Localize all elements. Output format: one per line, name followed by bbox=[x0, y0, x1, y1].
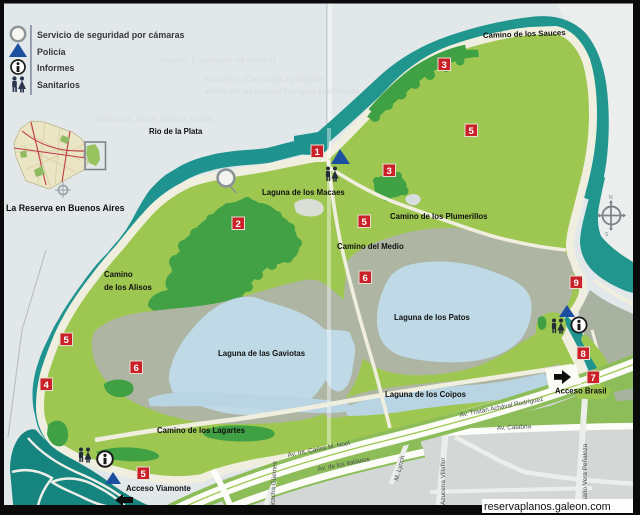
svg-text:reservaplanos.galeon.com: reservaplanos.galeon.com bbox=[484, 501, 611, 513]
svg-text:5: 5 bbox=[141, 469, 147, 480]
svg-text:Informes: Informes bbox=[37, 63, 75, 73]
svg-text:Acceso Viamonte: Acceso Viamonte bbox=[126, 484, 192, 493]
svg-text:Policía: Policía bbox=[37, 47, 66, 57]
svg-text:8: 8 bbox=[581, 349, 587, 360]
svg-text:Camino de los Lagartes: Camino de los Lagartes bbox=[157, 426, 246, 435]
svg-text:5: 5 bbox=[362, 217, 368, 228]
svg-text:souens; Cernoga l yvilgda: souens; Cernoga l yvilgda bbox=[205, 74, 324, 85]
svg-text:2: 2 bbox=[236, 219, 241, 230]
svg-text:Laguna de los Patos: Laguna de los Patos bbox=[394, 313, 470, 322]
svg-text:Servicio de seguridad por cáma: Servicio de seguridad por cámaras bbox=[37, 30, 185, 40]
svg-text:6: 6 bbox=[134, 363, 139, 374]
svg-text:weib do asnuaso fungos l ocinu: weib do asnuaso fungos l ocinude bbox=[204, 86, 360, 97]
svg-text:3: 3 bbox=[442, 60, 447, 71]
svg-text:de los Alisos: de los Alisos bbox=[104, 283, 152, 292]
svg-text:uyuso 7 asiwylo ol onerot: uyuso 7 asiwylo ol onerot bbox=[160, 55, 277, 66]
svg-text:Laguna de las Gaviotas: Laguna de las Gaviotas bbox=[218, 349, 306, 358]
svg-text:Rio de la Plata: Rio de la Plata bbox=[149, 127, 203, 136]
svg-text:ldbasos. Enis obnos ruais: ldbasos. Enis obnos ruais bbox=[95, 114, 213, 125]
svg-text:6: 6 bbox=[363, 273, 368, 284]
svg-text:1: 1 bbox=[315, 147, 321, 158]
svg-text:7: 7 bbox=[591, 373, 596, 384]
svg-text:Sanitarios: Sanitarios bbox=[37, 80, 80, 90]
svg-text:3: 3 bbox=[387, 166, 392, 177]
svg-text:N: N bbox=[609, 195, 613, 201]
svg-text:Camino del Medio: Camino del Medio bbox=[337, 242, 404, 251]
svg-text:Camino: Camino bbox=[104, 270, 133, 279]
svg-text:La Reserva en Buenos Aires: La Reserva en Buenos Aires bbox=[6, 203, 125, 213]
svg-text:5: 5 bbox=[64, 335, 70, 346]
svg-text:Azucena Villaflor: Azucena Villaflor bbox=[440, 457, 447, 505]
svg-text:5: 5 bbox=[469, 126, 475, 137]
svg-text:Acceso Brasil: Acceso Brasil bbox=[555, 387, 607, 396]
svg-text:Laguna de los Macaes: Laguna de los Macaes bbox=[262, 188, 345, 197]
svg-text:Laguna de los Coipos: Laguna de los Coipos bbox=[385, 390, 467, 399]
svg-text:Camino de los Plumerillos: Camino de los Plumerillos bbox=[390, 212, 488, 221]
svg-text:4: 4 bbox=[44, 380, 50, 391]
svg-text:9: 9 bbox=[574, 278, 579, 289]
